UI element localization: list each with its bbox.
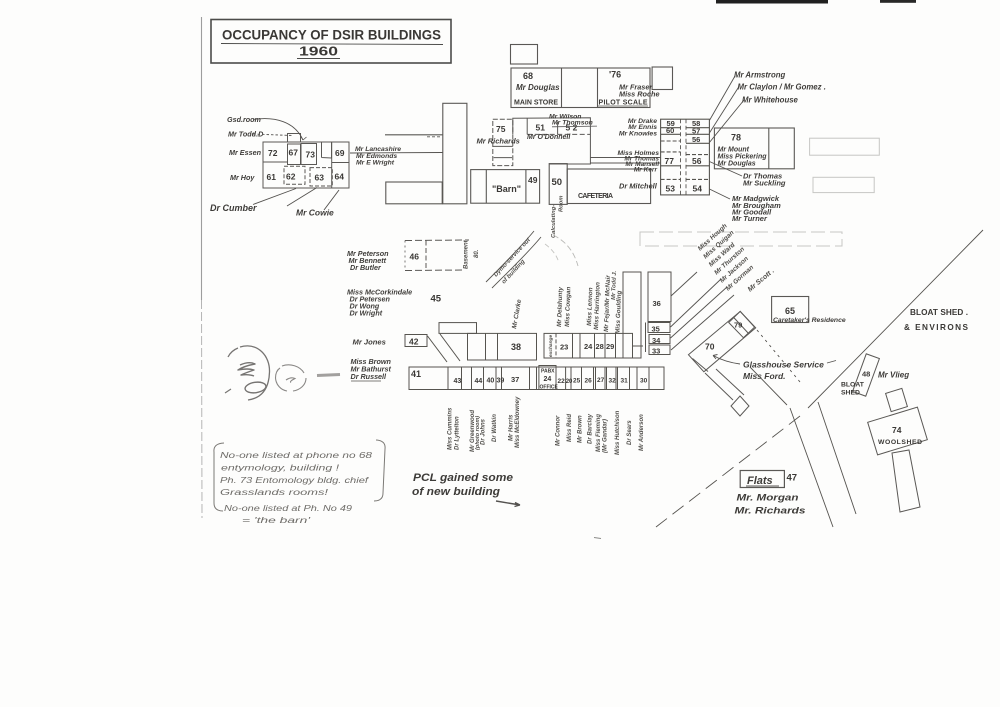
svg-text:45: 45 [431,294,442,305]
svg-text:22: 22 [558,378,566,385]
svg-text:Miss Hutchison: Miss Hutchison [615,410,621,455]
svg-text:Miss Cummins: Miss Cummins [448,407,454,450]
svg-text:Mr. Morgan: Mr. Morgan [737,493,799,504]
svg-text:77: 77 [665,156,675,166]
svg-text:37: 37 [511,375,519,384]
svg-text:Mr Essen: Mr Essen [229,148,262,157]
svg-text:74: 74 [892,425,902,435]
svg-text:Mr O'Donnell: Mr O'Donnell [527,134,571,141]
svg-text:OCCUPANCY OF DSIR BUILDINGS: OCCUPANCY OF DSIR BUILDINGS [222,28,441,43]
svg-text:Dr Butler: Dr Butler [350,263,382,272]
svg-text:67: 67 [289,148,299,158]
svg-text:44: 44 [475,378,483,385]
svg-text:63: 63 [315,173,325,183]
svg-text:69: 69 [335,148,345,158]
svg-text:Mr Douglas: Mr Douglas [516,83,560,92]
svg-text:= 'the barn': = 'the barn' [242,516,311,525]
svg-text:BLOAT SHED .: BLOAT SHED . [910,308,968,317]
svg-text:78: 78 [731,133,741,143]
svg-text:Mr Suckling: Mr Suckling [743,179,786,188]
svg-text:Miss Harrington: Miss Harrington [593,282,602,330]
svg-text:Glasshouse Service: Glasshouse Service [743,360,824,370]
svg-text:27: 27 [597,377,605,384]
svg-text:Mr. Richards: Mr. Richards [735,506,806,517]
svg-text:53: 53 [666,184,676,194]
svg-text:CAFETERIA: CAFETERIA [578,193,613,200]
svg-text:32: 32 [609,378,617,385]
svg-text:BLOAT: BLOAT [841,382,865,389]
svg-text:25: 25 [573,378,581,385]
svg-text:29: 29 [606,342,614,351]
svg-text:Dr Cumber: Dr Cumber [210,203,257,213]
svg-text:54: 54 [693,184,703,194]
svg-text:79: 79 [734,321,742,330]
svg-text:33: 33 [652,347,660,356]
svg-text:Mr Claylon / Mr Gomez .: Mr Claylon / Mr Gomez . [738,83,826,92]
svg-text:40: 40 [487,378,495,385]
svg-text:35: 35 [652,325,660,334]
svg-text:1960: 1960 [299,45,338,59]
svg-text:Ph. 73 Entomology bldg. chief: Ph. 73 Entomology bldg. chief [220,476,369,485]
svg-text:Mr Anderson: Mr Anderson [639,414,645,451]
svg-text:Dr Lyttelton: Dr Lyttelton [455,416,461,450]
svg-text:75: 75 [496,124,506,134]
svg-text:MAIN STORE: MAIN STORE [514,100,558,107]
svg-text:Miss Cowgan: Miss Cowgan [564,286,572,327]
svg-text:23: 23 [560,343,568,352]
svg-text:20: 20 [566,379,573,385]
svg-text:Mr Douglas: Mr Douglas [718,161,756,168]
svg-text:Dr Johns: Dr Johns [481,418,487,445]
svg-text:Mr Armstrong: Mr Armstrong [734,71,785,80]
svg-text:Mr E Wright: Mr E Wright [356,160,395,167]
svg-text:& ENVIRONS: & ENVIRONS [904,323,969,332]
svg-text:Caretaker's Residence: Caretaker's Residence [773,317,846,324]
svg-text:of new building: of new building [412,486,500,498]
svg-text:38: 38 [511,342,521,352]
svg-text:Miss Pickering: Miss Pickering [718,154,768,161]
svg-text:Dr Mitchell: Dr Mitchell [619,182,658,191]
svg-text:39: 39 [497,378,505,385]
svg-text:61: 61 [267,172,277,182]
svg-text:80.: 80. [474,249,480,258]
svg-text:SHED: SHED [841,390,860,397]
svg-text:Mr Delahunty: Mr Delahunty [556,286,564,327]
svg-text:Mr Kerr: Mr Kerr [634,167,658,174]
svg-text:exchange: exchange [548,335,554,357]
svg-text:60: 60 [666,126,674,135]
svg-text:Mr Vlieg: Mr Vlieg [878,371,909,380]
svg-text:Mr Harris: Mr Harris [509,414,515,441]
svg-text:Gsd.room: Gsd.room [227,115,262,124]
svg-text:Mr Richards: Mr Richards [477,137,520,146]
svg-text:64: 64 [335,172,345,182]
svg-text:36: 36 [653,299,661,308]
svg-text:49: 49 [528,175,538,185]
svg-text:24: 24 [544,376,552,383]
svg-text:68: 68 [523,71,533,81]
svg-text:42: 42 [409,337,419,347]
svg-text:OFFICE: OFFICE [540,385,559,391]
svg-text:Flats: Flats [747,475,773,487]
svg-text:73: 73 [306,150,316,160]
svg-text:No-one listed at phone no 68: No-one listed at phone no 68 [220,451,373,460]
svg-text:PABX: PABX [541,369,555,375]
svg-text:Miss Reid: Miss Reid [567,414,573,442]
svg-text:70: 70 [705,342,715,352]
svg-text:Miss Goulding: Miss Goulding [615,290,624,334]
svg-text:41: 41 [411,369,421,379]
svg-text:entymology, building !: entymology, building ! [221,464,340,473]
svg-text:Calculating-: Calculating- [551,205,557,238]
svg-text:65: 65 [785,306,795,316]
svg-text:'76: '76 [609,70,621,80]
svg-text:WOOLSHED: WOOLSHED [878,439,922,446]
svg-text:PILOT SCALE: PILOT SCALE [599,100,648,107]
svg-text:Mr Brown: Mr Brown [578,415,584,443]
svg-text:Miss McEldowney: Miss McEldowney [515,396,521,448]
svg-text:50: 50 [552,177,563,188]
svg-text:Dr Sears: Dr Sears [627,420,633,445]
svg-text:43: 43 [454,378,462,385]
svg-text:Basement: Basement [464,239,470,269]
svg-text:30: 30 [640,378,648,385]
svg-text:(Mr Gandar): (Mr Gandar) [603,419,609,453]
svg-text:Mr Whitehouse: Mr Whitehouse [742,96,799,105]
svg-text:Room: Room [559,196,565,212]
svg-text:Mr Jones: Mr Jones [353,338,386,347]
svg-text:46: 46 [410,252,420,262]
svg-text:56: 56 [692,135,700,144]
svg-text:Mr Connor: Mr Connor [556,415,562,446]
svg-text:Dr Russell: Dr Russell [351,372,388,381]
svg-text:Miss Fleming: Miss Fleming [596,414,602,452]
svg-text:31: 31 [621,378,629,385]
svg-text:34: 34 [652,336,661,345]
svg-text:24: 24 [584,342,593,351]
svg-text:Dr Barclay: Dr Barclay [588,413,594,444]
svg-text:Mr Mount: Mr Mount [718,147,750,154]
svg-text:Mr Turner: Mr Turner [732,214,768,223]
svg-text:Mr Lancashire: Mr Lancashire [355,146,401,153]
svg-text:51: 51 [536,123,546,133]
svg-text:Mr Thomson: Mr Thomson [552,120,593,127]
svg-text:Grasslands rooms!: Grasslands rooms! [220,488,329,497]
svg-text:Mr Cowie: Mr Cowie [296,208,334,218]
svg-text:28: 28 [596,342,604,351]
svg-text:72: 72 [268,148,278,158]
svg-text:PCL gained some: PCL gained some [413,472,513,484]
svg-text:26: 26 [585,378,593,385]
svg-text:48: 48 [862,370,870,379]
svg-text:62: 62 [286,172,296,182]
svg-text:Dr Wright: Dr Wright [350,309,383,318]
svg-text:56: 56 [692,156,702,166]
svg-text:Miss Ford.: Miss Ford. [743,371,786,381]
svg-text:Dr Watkin: Dr Watkin [492,414,498,442]
svg-text:"Barn": "Barn" [492,184,521,194]
svg-text:47: 47 [787,473,798,484]
svg-text:Mr Hoy: Mr Hoy [230,173,255,182]
svg-text:No-one listed at Ph. No 49: No-one listed at Ph. No 49 [224,504,353,513]
svg-text:Mr Knowles: Mr Knowles [619,131,657,138]
svg-text:Miss Roche: Miss Roche [619,90,660,99]
svg-text:Mr Clarke: Mr Clarke [511,299,523,330]
